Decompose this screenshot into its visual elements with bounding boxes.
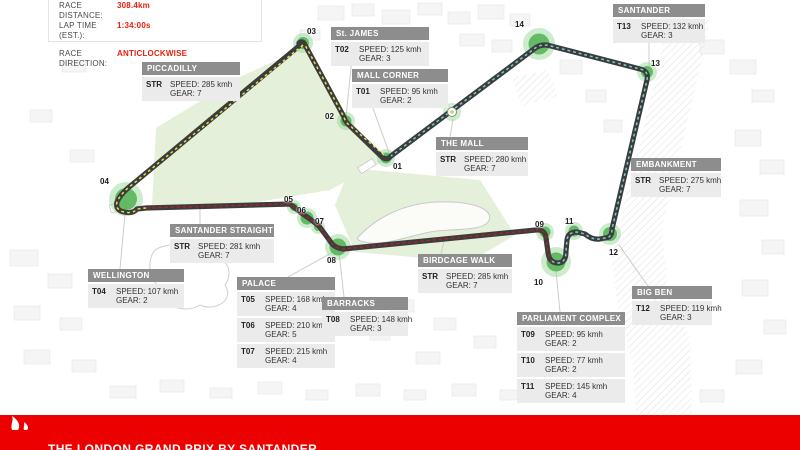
circuit-infographic: RACE DISTANCE: 308.4km LAP TIME (EST.): … bbox=[0, 0, 800, 450]
turn-code: STR bbox=[146, 80, 170, 98]
event-title: THE LONDON GRAND PRIX BY SANTANDER bbox=[48, 442, 317, 450]
race-info-box: RACE DISTANCE: 308.4km LAP TIME (EST.): … bbox=[48, 0, 262, 42]
corner-number: 11 bbox=[565, 217, 573, 226]
callout-row: STRSPEED: 285 kmhGEAR: 7 bbox=[142, 77, 240, 101]
corner-number: 08 bbox=[327, 256, 336, 265]
turn-speed: SPEED: 168 kmh bbox=[265, 295, 327, 304]
corner-number: 03 bbox=[307, 27, 316, 36]
race-direction-label: RACE DIRECTION: bbox=[59, 49, 117, 69]
corner-number: 07 bbox=[315, 217, 324, 226]
santander-flame-icon bbox=[0, 415, 40, 430]
corner-number: 09 bbox=[535, 220, 544, 229]
turn-speed: SPEED: 285 kmh bbox=[446, 272, 508, 281]
callout-row: T13SPEED: 132 kmhGEAR: 3 bbox=[613, 19, 705, 43]
turn-speed: SPEED: 280 kmh bbox=[464, 155, 526, 164]
callout-title: St. JAMES bbox=[331, 27, 429, 40]
parade-ground-hatch bbox=[512, 70, 558, 106]
turn-code: T02 bbox=[335, 45, 359, 63]
turn-gear: GEAR: 4 bbox=[265, 304, 327, 313]
lap-time-value: 1:34:00s bbox=[117, 21, 151, 41]
race-distance-row: RACE DISTANCE: 308.4km bbox=[59, 1, 251, 21]
callout-title: PARLIAMENT COMPLEX bbox=[517, 312, 625, 325]
callout-row: STRSPEED: 281 kmhGEAR: 7 bbox=[170, 239, 274, 263]
turn-gear: GEAR: 4 bbox=[545, 391, 607, 400]
corner-number: 01 bbox=[393, 162, 402, 171]
callout-row: T09SPEED: 95 kmhGEAR: 2 bbox=[517, 327, 625, 351]
turn-speed: SPEED: 119 kmh bbox=[660, 304, 722, 313]
turn-speed: SPEED: 125 kmh bbox=[359, 45, 421, 54]
turn-speed: SPEED: 95 kmh bbox=[380, 87, 438, 96]
turn-speed: SPEED: 148 kmh bbox=[350, 315, 412, 324]
callout-barracks: BARRACKST08SPEED: 148 kmhGEAR: 3 bbox=[322, 297, 408, 336]
callout-row: STRSPEED: 280 kmhGEAR: 7 bbox=[436, 152, 528, 176]
callout-title: EMBANKMENT bbox=[631, 158, 721, 171]
callout-title: BIRDCAGE WALK bbox=[418, 254, 512, 267]
turn-gear: GEAR: 2 bbox=[545, 365, 603, 374]
callout-title: PALACE bbox=[237, 277, 335, 290]
callout-mall-corner: MALL CORNERT01SPEED: 95 kmhGEAR: 2 bbox=[352, 69, 448, 108]
turn-code: T12 bbox=[636, 304, 660, 322]
turn-gear: GEAR: 7 bbox=[464, 164, 526, 173]
turn-code: T13 bbox=[617, 22, 641, 40]
turn-code: T05 bbox=[241, 295, 265, 313]
turn-gear: GEAR: 7 bbox=[446, 281, 508, 290]
turn-gear: GEAR: 5 bbox=[265, 330, 327, 339]
turn-gear: GEAR: 2 bbox=[116, 296, 178, 305]
callout-title: BIG BEN bbox=[632, 286, 712, 299]
turn-gear: GEAR: 3 bbox=[641, 31, 703, 40]
turn-code: T07 bbox=[241, 347, 265, 365]
callout-st-james: St. JAMEST02SPEED: 125 kmhGEAR: 3 bbox=[331, 27, 429, 66]
lap-time-row: LAP TIME (EST.): 1:34:00s bbox=[59, 21, 251, 41]
turn-speed: SPEED: 210 kmh bbox=[265, 321, 327, 330]
turn-speed: SPEED: 145 kmh bbox=[545, 382, 607, 391]
corner-number: 05 bbox=[284, 195, 293, 204]
callout-row: T01SPEED: 95 kmhGEAR: 2 bbox=[352, 84, 448, 108]
race-distance-value: 308.4km bbox=[117, 1, 150, 21]
corner-number: 02 bbox=[325, 112, 334, 121]
callout-birdcage-walk: BIRDCAGE WALKSTRSPEED: 285 kmhGEAR: 7 bbox=[418, 254, 512, 293]
callout-row: T02SPEED: 125 kmhGEAR: 3 bbox=[331, 42, 429, 66]
turn-code: T08 bbox=[326, 315, 350, 333]
turn-gear: GEAR: 3 bbox=[350, 324, 412, 333]
turn-code: STR bbox=[635, 176, 659, 194]
turn-gear: GEAR: 7 bbox=[659, 185, 721, 194]
race-distance-label: RACE DISTANCE: bbox=[59, 1, 117, 21]
callout-palace: PALACET05SPEED: 168 kmhGEAR: 4T06SPEED: … bbox=[237, 277, 335, 368]
callout-title: SANTANDER bbox=[613, 4, 705, 17]
callout-row: T10SPEED: 77 kmhGEAR: 2 bbox=[517, 353, 625, 377]
callout-row: T05SPEED: 168 kmhGEAR: 4 bbox=[237, 292, 335, 316]
turn-speed: SPEED: 132 kmh bbox=[641, 22, 703, 31]
turn-speed: SPEED: 107 kmh bbox=[116, 287, 178, 296]
turn-code: T04 bbox=[92, 287, 116, 305]
callout-the-mall: THE MALLSTRSPEED: 280 kmhGEAR: 7 bbox=[436, 137, 528, 176]
corner-number: 04 bbox=[100, 177, 109, 186]
turn-gear: GEAR: 3 bbox=[359, 54, 421, 63]
callout-row: T08SPEED: 148 kmhGEAR: 3 bbox=[322, 312, 408, 336]
lap-time-label: LAP TIME (EST.): bbox=[59, 21, 117, 41]
turn-speed: SPEED: 77 kmh bbox=[545, 356, 603, 365]
callout-row: T11SPEED: 145 kmhGEAR: 4 bbox=[517, 379, 625, 403]
turn-gear: GEAR: 3 bbox=[660, 313, 722, 322]
callout-row: T06SPEED: 210 kmhGEAR: 5 bbox=[237, 318, 335, 342]
turn-speed: SPEED: 215 kmh bbox=[265, 347, 327, 356]
callout-santander-straight: SANTANDER STRAIGHTSTRSPEED: 281 kmhGEAR:… bbox=[170, 224, 274, 263]
corner-number: 06 bbox=[297, 206, 306, 215]
callout-big-ben: BIG BENT12SPEED: 119 kmhGEAR: 3 bbox=[632, 286, 712, 325]
turn-speed: SPEED: 275 kmh bbox=[659, 176, 721, 185]
turn-gear: GEAR: 7 bbox=[198, 251, 260, 260]
turn-speed: SPEED: 285 kmh bbox=[170, 80, 232, 89]
start-finish-marker bbox=[448, 108, 457, 117]
callout-title: MALL CORNER bbox=[352, 69, 448, 82]
callout-row: T07SPEED: 215 kmhGEAR: 4 bbox=[237, 344, 335, 368]
callout-title: PICCADILLY bbox=[142, 62, 240, 75]
callout-title: THE MALL bbox=[436, 137, 528, 150]
callout-title: BARRACKS bbox=[322, 297, 408, 310]
callout-row: T04SPEED: 107 kmhGEAR: 2 bbox=[88, 284, 184, 308]
turn-speed: SPEED: 281 kmh bbox=[198, 242, 260, 251]
callout-parliament-complex: PARLIAMENT COMPLEXT09SPEED: 95 kmhGEAR: … bbox=[517, 312, 625, 403]
callout-piccadilly: PICCADILLYSTRSPEED: 285 kmhGEAR: 7 bbox=[142, 62, 240, 101]
callout-row: STRSPEED: 285 kmhGEAR: 7 bbox=[418, 269, 512, 293]
callout-wellington: WELLINGTONT04SPEED: 107 kmhGEAR: 2 bbox=[88, 269, 184, 308]
turn-gear: GEAR: 2 bbox=[545, 339, 603, 348]
turn-code: STR bbox=[422, 272, 446, 290]
turn-code: T01 bbox=[356, 87, 380, 105]
callout-santander: SANTANDERT13SPEED: 132 kmhGEAR: 3 bbox=[613, 4, 705, 43]
corner-number: 13 bbox=[651, 59, 660, 68]
callout-title: SANTANDER STRAIGHT bbox=[170, 224, 274, 237]
corner-number: 14 bbox=[515, 20, 524, 29]
turn-code: T09 bbox=[521, 330, 545, 348]
turn-gear: GEAR: 4 bbox=[265, 356, 327, 365]
callout-embankment: EMBANKMENTSTRSPEED: 275 kmhGEAR: 7 bbox=[631, 158, 721, 197]
corner-number: 12 bbox=[609, 248, 618, 257]
corner-number: 10 bbox=[534, 278, 543, 287]
thames-river bbox=[612, 20, 710, 414]
turn-code: STR bbox=[174, 242, 198, 260]
turn-speed: SPEED: 95 kmh bbox=[545, 330, 603, 339]
turn-code: T06 bbox=[241, 321, 265, 339]
footer-bar: THE LONDON GRAND PRIX BY SANTANDER bbox=[0, 415, 800, 450]
turn-code: T10 bbox=[521, 356, 545, 374]
callout-row: STRSPEED: 275 kmhGEAR: 7 bbox=[631, 173, 721, 197]
callout-row: T12SPEED: 119 kmhGEAR: 3 bbox=[632, 301, 712, 325]
callout-title: WELLINGTON bbox=[88, 269, 184, 282]
turn-gear: GEAR: 7 bbox=[170, 89, 232, 98]
turn-gear: GEAR: 2 bbox=[380, 96, 438, 105]
turn-code: T11 bbox=[521, 382, 545, 400]
turn-code: STR bbox=[440, 155, 464, 173]
